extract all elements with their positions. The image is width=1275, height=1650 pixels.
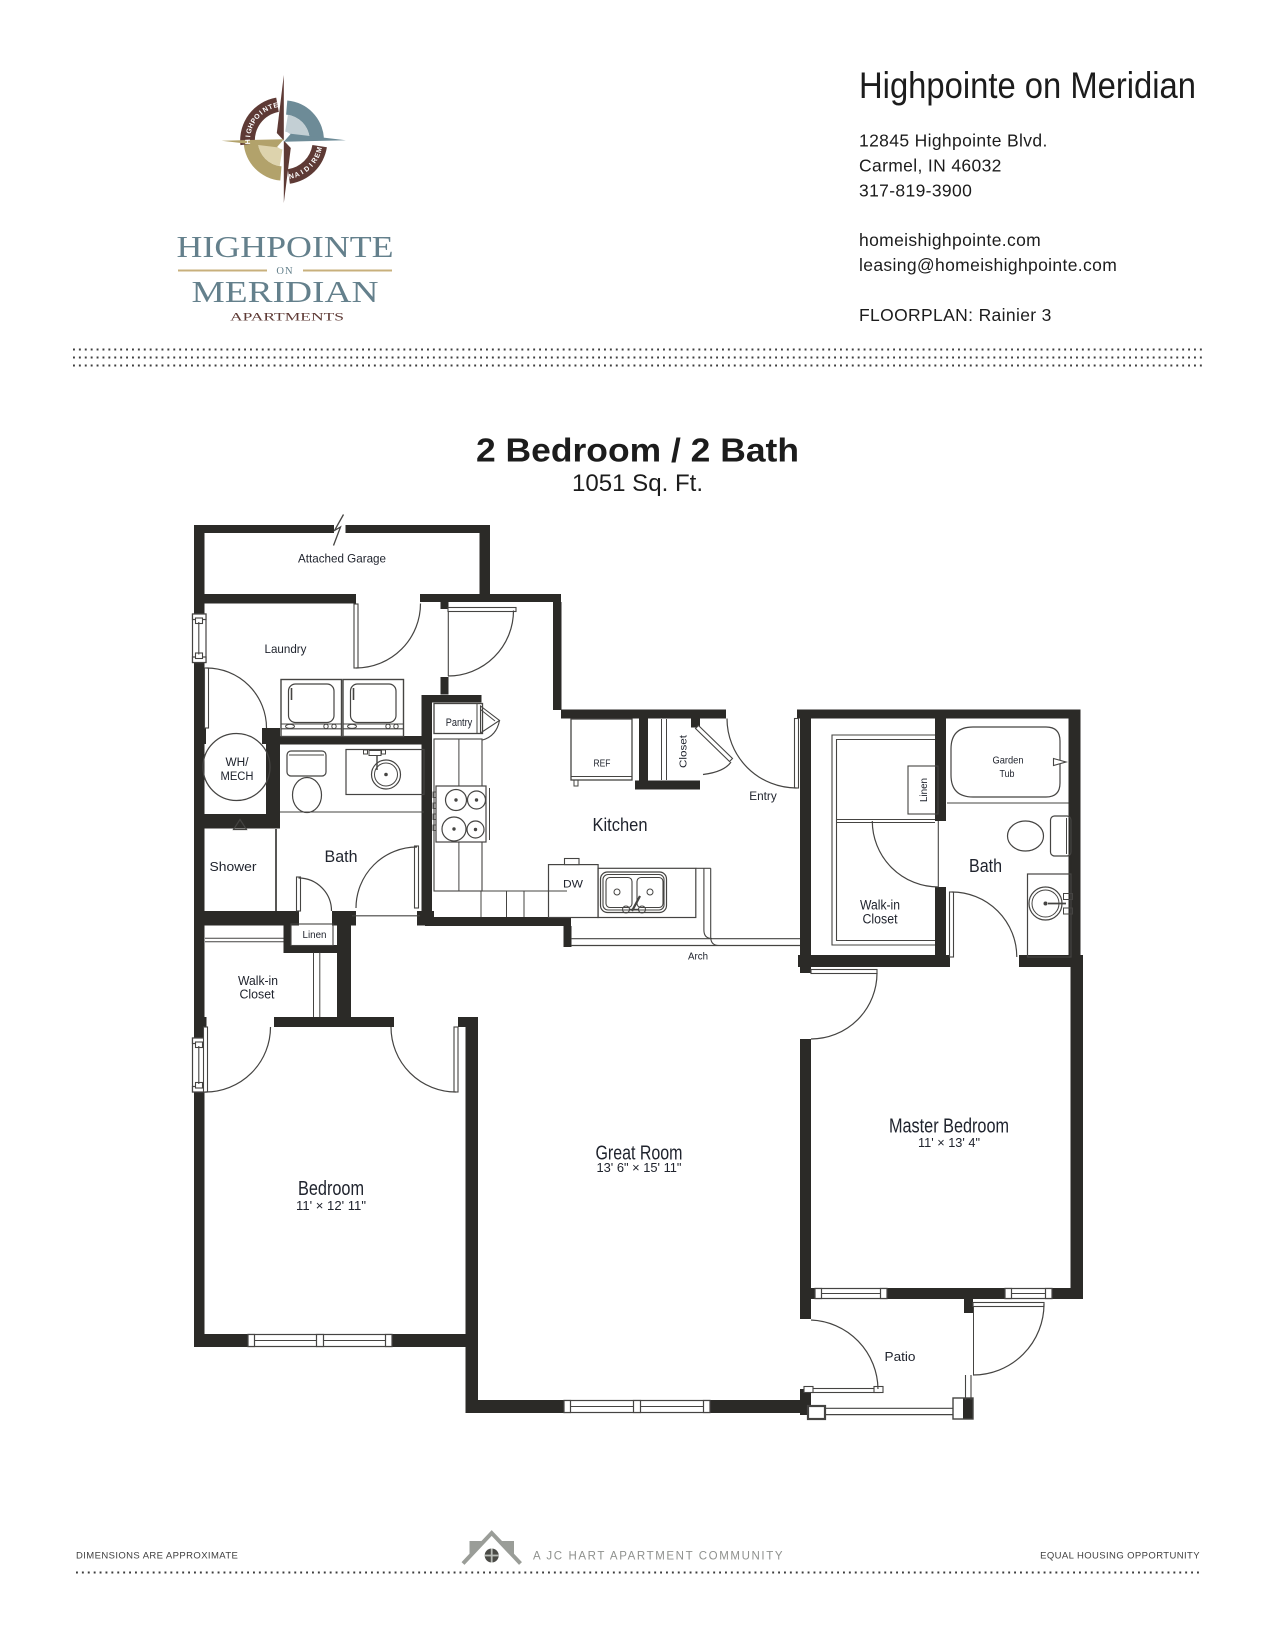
svg-text:2 Bedroom / 2 Bath: 2 Bedroom / 2 Bath	[476, 432, 799, 469]
svg-text:Linen: Linen	[919, 778, 930, 802]
svg-text:DW: DW	[563, 879, 584, 891]
svg-text:MECH: MECH	[221, 771, 254, 783]
svg-text:Shower: Shower	[210, 860, 257, 874]
svg-text:13' 6" × 15' 11": 13' 6" × 15' 11"	[597, 1161, 682, 1175]
svg-text:REF: REF	[594, 759, 611, 770]
svg-text:H: H	[245, 139, 252, 144]
svg-text:DIMENSIONS ARE APPROXIMATE: DIMENSIONS ARE APPROXIMATE	[76, 1551, 238, 1562]
svg-text:Pantry: Pantry	[446, 717, 473, 729]
svg-text:1051 Sq. Ft.: 1051 Sq. Ft.	[572, 470, 703, 497]
svg-text:Closet: Closet	[863, 912, 898, 927]
svg-text:Bath: Bath	[325, 847, 358, 866]
svg-text:Tub: Tub	[1000, 768, 1015, 780]
svg-text:Entry: Entry	[749, 789, 777, 803]
svg-text:Arch: Arch	[688, 952, 708, 963]
svg-text:11' × 12' 11": 11' × 12' 11"	[296, 1199, 366, 1213]
svg-text:Laundry: Laundry	[265, 642, 308, 656]
svg-text:Walk-in: Walk-in	[860, 898, 900, 913]
svg-text:Master Bedroom: Master Bedroom	[889, 1116, 1009, 1138]
svg-text:MERIDIAN: MERIDIAN	[192, 274, 379, 309]
svg-text:Attached Garage: Attached Garage	[298, 552, 386, 566]
svg-text:Closet: Closet	[240, 987, 275, 1002]
svg-text:Bath: Bath	[969, 856, 1002, 876]
svg-text:Linen: Linen	[303, 930, 327, 941]
svg-text:317-819-3900: 317-819-3900	[859, 181, 972, 201]
svg-text:leasing@homeishighpointe.com: leasing@homeishighpointe.com	[859, 255, 1117, 275]
svg-text:Carmel, IN 46032: Carmel, IN 46032	[859, 156, 1002, 176]
svg-text:A JC HART APARTMENT COMMUNITY: A JC HART APARTMENT COMMUNITY	[533, 1551, 784, 1563]
svg-text:11' × 13' 4": 11' × 13' 4"	[918, 1136, 980, 1150]
svg-text:EQUAL HOUSING OPPORTUNITY: EQUAL HOUSING OPPORTUNITY	[1040, 1551, 1200, 1562]
svg-text:HIGHPOINTE: HIGHPOINTE	[177, 229, 394, 264]
svg-text:Closet: Closet	[678, 735, 690, 768]
svg-text:Bedroom: Bedroom	[298, 1178, 364, 1200]
svg-text:Patio: Patio	[885, 1349, 916, 1364]
svg-text:homeishighpointe.com: homeishighpointe.com	[859, 230, 1041, 250]
svg-text:WH/: WH/	[226, 757, 250, 769]
svg-text:APARTMENTS: APARTMENTS	[230, 310, 344, 324]
svg-text:Garden: Garden	[993, 755, 1024, 767]
svg-text:Kitchen: Kitchen	[593, 814, 648, 835]
svg-text:Highpointe on Meridian: Highpointe on Meridian	[859, 65, 1196, 106]
svg-text:FLOORPLAN: Rainier 3: FLOORPLAN: Rainier 3	[859, 305, 1052, 325]
svg-text:12845 Highpointe Blvd.: 12845 Highpointe Blvd.	[859, 131, 1048, 151]
